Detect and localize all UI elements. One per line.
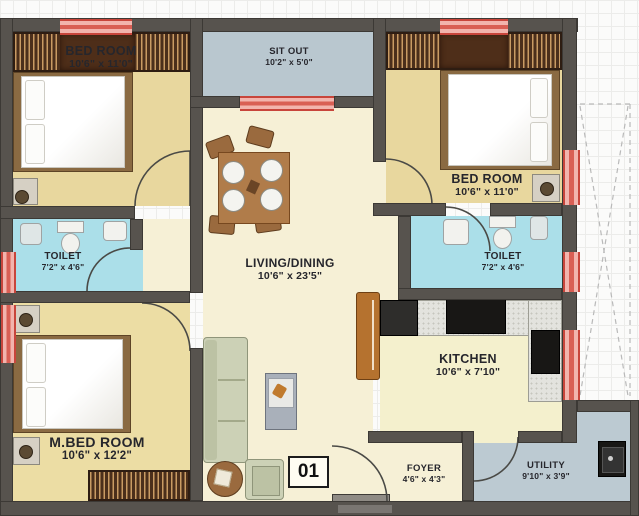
wall-living-west-lower [190, 348, 203, 501]
wall-bedroom-right-south-west [373, 203, 446, 216]
room-label-toilet-left: TOILET 7'2" x 4'6" [42, 251, 85, 272]
pillow-master-2 [26, 387, 46, 427]
dining-plate-3 [260, 159, 283, 182]
stove [446, 298, 506, 334]
wc-bowl-toilet-right [493, 228, 512, 249]
pillow-bedroom-right-1 [530, 78, 548, 118]
wall-toilet-left-south [0, 291, 190, 303]
window-sitout [240, 96, 334, 111]
window-master-bedroom [1, 305, 16, 363]
unit-number-badge: 01 [288, 456, 329, 488]
lamp-bedroom-right [540, 182, 554, 196]
shower-toilet-right [530, 216, 548, 240]
room-label-foyer: FOYER 4'6" x 4'3" [403, 463, 446, 484]
wall-utility-east [630, 400, 639, 516]
wall-toilet-right-west [398, 216, 411, 298]
sofa-cushion-line-1 [218, 379, 245, 381]
pillow-bedroom-right-2 [530, 122, 548, 162]
pillow-master-1 [26, 343, 46, 383]
wall-foyer-east [462, 431, 474, 501]
wall-bottom [0, 501, 639, 516]
sofa-back [205, 340, 217, 460]
window-toilet-left [1, 252, 16, 293]
wall-foyer-north [368, 431, 462, 443]
shower-toilet-left [20, 223, 42, 245]
wc-tank-toilet-left [57, 221, 84, 233]
armchair-seat [252, 466, 280, 496]
room-label-bedroom-right: BED ROOM 10'6" x 11'0" [451, 172, 522, 198]
wall-bedroom-right-west [373, 18, 386, 162]
entrance-step [338, 505, 392, 513]
room-label-living-dining: LIVING/DINING 10'6" x 23'5" [245, 256, 334, 282]
wall-toilet-left-east [130, 219, 143, 250]
lamp-master-2 [19, 445, 33, 459]
dresser-knob [15, 190, 29, 204]
wall-bedroom-right-south-east [490, 203, 562, 216]
window-bedroom-right-top [440, 19, 508, 35]
window-toilet-right [563, 252, 580, 292]
room-label-bedroom-top-left: BED ROOM 10'6" x 11'0" [65, 44, 136, 70]
wall-living-west-upper [190, 18, 203, 293]
washing-machine-knob [608, 456, 613, 461]
floor-plan: BED ROOM 10'6" x 11'0" SIT OUT 10'2" x 5… [0, 0, 639, 516]
kitchen-sink [531, 330, 560, 374]
basin-toilet-left [103, 221, 127, 241]
dining-plate-2 [222, 189, 245, 212]
room-label-utility: UTILITY 9'10" x 3'9" [522, 460, 570, 481]
wall-toilet-right-south [398, 288, 562, 300]
washing-machine-door [602, 447, 624, 473]
fridge-handle [372, 300, 374, 370]
window-bedroom-top-left [60, 19, 132, 35]
passage-floor [143, 219, 190, 291]
utility-door-floor [474, 431, 518, 443]
bedroom-right-door-floor [373, 162, 386, 203]
room-label-kitchen: KITCHEN 10'6" x 7'10" [436, 352, 500, 378]
wardrobe-master [88, 470, 190, 501]
dining-plate-4 [260, 188, 283, 211]
wall-kitchen-south [518, 431, 562, 443]
utility-floor-upper [577, 412, 630, 443]
wall-sitout-south-west [190, 96, 240, 108]
kitchen-appliance [380, 300, 418, 336]
wardrobe-center-right [440, 34, 508, 68]
dining-plate-1 [222, 161, 245, 184]
room-label-sit-out: SIT OUT 10'2" x 5'0" [265, 46, 313, 67]
basin-toilet-right [443, 219, 469, 245]
sofa-cushion-line-2 [218, 420, 245, 422]
window-bedroom-right-side [563, 150, 580, 205]
room-label-toilet-right: TOILET 7'2" x 4'6" [482, 251, 525, 272]
wall-bedroom-top-left-south [0, 206, 135, 219]
unit-number: 01 [298, 461, 319, 483]
pillow-bedroom-top-left-2 [25, 124, 45, 164]
coffee-table-napkin [214, 469, 233, 488]
toilet-left-door-floor [130, 250, 143, 291]
fridge [356, 292, 380, 380]
wc-tank-toilet-right [489, 216, 516, 228]
window-kitchen [563, 330, 580, 400]
corridor-floor [373, 216, 398, 300]
pillow-bedroom-top-left-1 [25, 80, 45, 120]
lamp-master-1 [19, 313, 33, 327]
room-label-master-bedroom: M.BED ROOM 10'6" x 12'2" [49, 434, 145, 462]
wall-utility-north [577, 400, 632, 412]
